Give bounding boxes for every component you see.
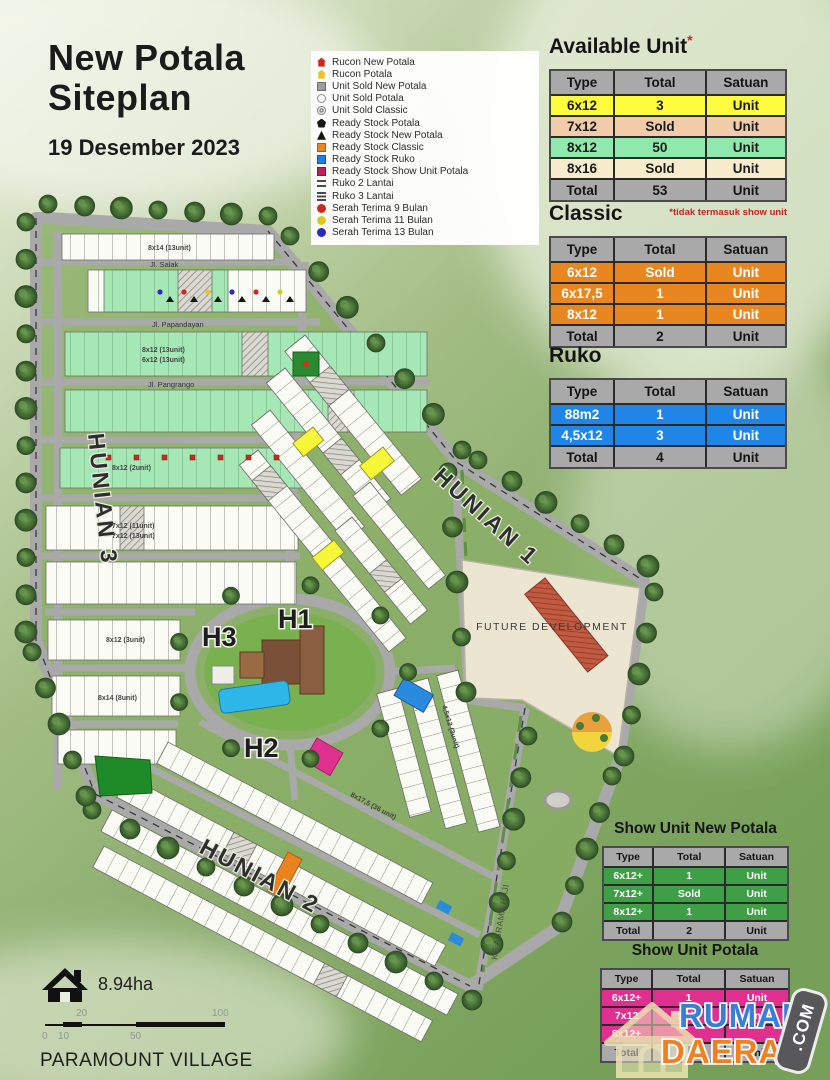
legend-item: Serah Terima 13 Bulan	[317, 227, 533, 239]
table-cell: 2	[614, 325, 706, 346]
table-cell: 50	[614, 137, 706, 158]
table-cell: Unit	[725, 921, 787, 939]
red-house-icon	[317, 58, 326, 67]
legend-item: Serah Terima 9 Bulan	[317, 202, 533, 214]
row-annotation: 8x12 (3unit)	[106, 637, 145, 644]
legend-item-label: Rucon New Potala	[332, 57, 415, 68]
village-label: PARAMOUNT VILLAGE	[40, 1050, 253, 1072]
table-cell: 7x12+	[604, 885, 653, 903]
legend-item: Ready Stock Show Unit Potala	[317, 166, 533, 178]
legend-item: Rucon Potala	[317, 68, 533, 80]
date-label: 19 Desember 2023	[48, 135, 245, 161]
double-circle-icon	[317, 106, 326, 115]
table-row: 8x12+1Unit	[604, 903, 787, 921]
label-h3: H3	[202, 622, 237, 652]
table-header-row: TypeTotalSatuan	[551, 71, 785, 95]
table-cell: 4,5x12	[551, 425, 614, 446]
available-unit-table: Available Unit* TypeTotalSatuan6x123Unit…	[549, 32, 787, 218]
table-cell: 6x17,5	[551, 283, 614, 304]
table-row: 88m21Unit	[551, 404, 785, 425]
table-cell: Unit	[706, 325, 785, 346]
three-lines-icon	[317, 192, 326, 201]
table-cell: 2	[653, 921, 725, 939]
table-header-row: TypeTotalSatuan	[551, 380, 785, 404]
table-row: 8x1250Unit	[551, 137, 785, 158]
footer: 8.94ha 20 100 0 10 50 PARAMOUNT VILLAGE	[40, 964, 253, 1072]
street-salak: Jl. Salak	[150, 260, 179, 269]
black-triangle-icon	[317, 131, 326, 140]
label-h2: H2	[244, 733, 279, 763]
scale-tick: 0	[42, 1031, 48, 1042]
table-cell: Unit	[706, 283, 785, 304]
legend-item-label: Ruko 2 Lantai	[332, 178, 394, 189]
table-cell: Unit	[706, 262, 785, 283]
column-header: Type	[604, 848, 653, 867]
asterisk: *	[687, 32, 692, 48]
ruko-table: Ruko TypeTotalSatuan88m21Unit4,5x123Unit…	[549, 344, 787, 469]
row-annotation: 8x14 (13unit)	[148, 245, 191, 252]
row-annotation: 8x12 (13unit)	[142, 347, 185, 354]
scale-bar: 20 100 0 10 50	[40, 1008, 240, 1046]
table-row: 6x17,51Unit	[551, 283, 785, 304]
row-annotation: 7x12 (11unit)	[112, 523, 154, 530]
table-cell: 53	[614, 179, 706, 200]
table-row: 6x123Unit	[551, 95, 785, 116]
table-cell: Unit	[706, 446, 785, 467]
legend-item: Unit Sold Potala	[317, 93, 533, 105]
table-cell: 8x12+	[604, 903, 653, 921]
table-total-row: Total53Unit	[551, 179, 785, 200]
legend-item-label: Ready Stock Show Unit Potala	[332, 166, 468, 177]
table-cell: Total	[551, 325, 614, 346]
legend-item-label: Unit Sold Potala	[332, 93, 404, 104]
column-header: Type	[551, 238, 614, 262]
yellow-circle-icon	[317, 216, 326, 225]
table-cell: 6x12	[551, 262, 614, 283]
row-annotation: 6x12 (13unit)	[142, 357, 185, 364]
yellow-house-icon	[317, 70, 326, 79]
table-cell: Unit	[706, 425, 785, 446]
column-header: Type	[551, 71, 614, 95]
legend-item-label: Unit Sold New Potala	[332, 81, 427, 92]
table-cell: 1	[653, 867, 725, 885]
column-header: Satuan	[725, 848, 787, 867]
header: New Potala Siteplan 19 Desember 2023	[48, 38, 245, 161]
column-header: Total	[614, 71, 706, 95]
legend-item-label: Rucon Potala	[332, 69, 392, 80]
table-cell: 3	[614, 425, 706, 446]
legend-item-label: Ready Stock Classic	[332, 142, 424, 153]
column-header: Total	[614, 380, 706, 404]
table-title: Classic	[549, 202, 787, 226]
scale-tick: 50	[130, 1031, 141, 1042]
table-cell: 4	[614, 446, 706, 467]
legend-item: Ruko 2 Lantai	[317, 178, 533, 190]
orange-square-icon	[317, 143, 326, 152]
label-h1: H1	[278, 604, 313, 634]
table-cell: Unit	[706, 158, 785, 179]
table-row: 6x12SoldUnit	[551, 262, 785, 283]
legend-item: Rucon New Potala	[317, 56, 533, 68]
table-header-row: TypeTotalSatuan	[551, 238, 785, 262]
legend-item: Ready Stock Potala	[317, 117, 533, 129]
table-cell: Unit	[706, 179, 785, 200]
table-cell: Sold	[614, 158, 706, 179]
street-papandayan: Jl. Papandayan	[152, 320, 204, 329]
legend-item-label: Serah Terima 13 Bulan	[332, 227, 434, 238]
classic-table: Classic TypeTotalSatuan6x12SoldUnit6x17,…	[549, 202, 787, 348]
table-total-row: Total2Unit	[604, 921, 787, 939]
black-pentagon-icon	[317, 119, 326, 128]
table-cell: Unit	[706, 137, 785, 158]
label-future-development: FUTURE DEVELOPMENT	[476, 621, 628, 633]
table-cell: 1	[614, 304, 706, 325]
table-cell: 8x12	[551, 304, 614, 325]
circle-outline-icon	[317, 94, 326, 103]
table-cell: Unit	[706, 116, 785, 137]
table-row: 6x12+1Unit	[604, 867, 787, 885]
row-annotation: 7x12 (13unit)	[112, 533, 155, 540]
table-cell: 1	[614, 283, 706, 304]
table-cell: Unit	[725, 903, 787, 921]
table-cell: Sold	[614, 116, 706, 137]
red-circle-icon	[317, 204, 326, 213]
legend-item-label: Ready Stock Ruko	[332, 154, 415, 165]
legend-item-label: Ready Stock Potala	[332, 118, 420, 129]
table-cell: Unit	[706, 404, 785, 425]
legend-item: Ready Stock New Potala	[317, 129, 533, 141]
table-cell: 8x16	[551, 158, 614, 179]
two-lines-icon	[317, 180, 326, 187]
column-header: Satuan	[706, 71, 785, 95]
table-cell: 7x12	[551, 116, 614, 137]
siteplan-page: { "header": { "title_line1": "New Potala…	[0, 0, 830, 1080]
legend-item: Serah Terima 11 Bulan	[317, 214, 533, 226]
table-row: 7x12+SoldUnit	[604, 885, 787, 903]
blue-square-icon	[317, 155, 326, 164]
table-cell: Unit	[706, 304, 785, 325]
table-row: 8x121Unit	[551, 304, 785, 325]
page-title-line2: Siteplan	[48, 78, 245, 118]
legend-panel: Rucon New PotalaRucon PotalaUnit Sold Ne…	[311, 51, 539, 245]
row-annotation: 8x14 (8unit)	[98, 695, 137, 702]
blue-circle-icon	[317, 228, 326, 237]
page-title-line1: New Potala	[48, 38, 245, 78]
legend-item: Ready Stock Ruko	[317, 154, 533, 166]
scale-tick: 10	[58, 1031, 69, 1042]
table-cell: 6x12+	[604, 867, 653, 885]
table-total-row: Total4Unit	[551, 446, 785, 467]
table-cell: Unit	[725, 885, 787, 903]
table-cell: 1	[653, 903, 725, 921]
column-header: Satuan	[706, 238, 785, 262]
column-header: Satuan	[706, 380, 785, 404]
table-row: 7x12SoldUnit	[551, 116, 785, 137]
street-pangrango: Jl. Pangrango	[148, 380, 194, 389]
table-cell: Sold	[653, 885, 725, 903]
legend-item-label: Serah Terima 9 Bulan	[332, 203, 428, 214]
legend-item: Unit Sold New Potala	[317, 80, 533, 92]
legend-item-label: Serah Terima 11 Bulan	[332, 215, 433, 226]
rumahdaerah-watermark: RUMAH DAERAH .COM	[595, 985, 830, 1080]
column-header: Type	[551, 380, 614, 404]
show-unit-new-potala-table: Show Unit New Potala TypeTotalSatuan6x12…	[602, 820, 789, 941]
paramount-house-icon	[40, 964, 90, 1004]
crimson-square-icon	[317, 167, 326, 176]
table-row: 4,5x123Unit	[551, 425, 785, 446]
gray-square-icon	[317, 82, 326, 91]
column-header: Total	[614, 238, 706, 262]
table-cell: Sold	[614, 262, 706, 283]
table-total-row: Total2Unit	[551, 325, 785, 346]
table-cell: Total	[604, 921, 653, 939]
table-title: Show Unit New Potala	[602, 820, 789, 838]
table-header-row: TypeTotalSatuan	[604, 848, 787, 867]
legend-item: Ready Stock Classic	[317, 141, 533, 153]
table-cell: 6x12	[551, 95, 614, 116]
table-title: Show Unit Potala	[600, 942, 790, 960]
legend-item-label: Ready Stock New Potala	[332, 130, 443, 141]
table-cell: 1	[614, 404, 706, 425]
legend-item-label: Ruko 3 Lantai	[332, 191, 394, 202]
row-annotation: 8x12 (2unit)	[112, 465, 151, 472]
scale-tick: 100	[212, 1008, 229, 1019]
table-cell: 8x12	[551, 137, 614, 158]
legend-item: Unit Sold Classic	[317, 105, 533, 117]
table-title: Ruko	[549, 344, 787, 368]
table-title: Available Unit	[549, 35, 687, 58]
table-cell: 3	[614, 95, 706, 116]
table-cell: Unit	[725, 867, 787, 885]
table-cell: Total	[551, 446, 614, 467]
legend-item: Ruko 3 Lantai	[317, 190, 533, 202]
table-cell: 88m2	[551, 404, 614, 425]
table-cell: Total	[551, 179, 614, 200]
area-label: 8.94ha	[98, 974, 153, 995]
scale-tick: 20	[76, 1008, 87, 1019]
column-header: Total	[653, 848, 725, 867]
table-cell: Unit	[706, 95, 785, 116]
legend-item-label: Unit Sold Classic	[332, 105, 408, 116]
table-row: 8x16SoldUnit	[551, 158, 785, 179]
